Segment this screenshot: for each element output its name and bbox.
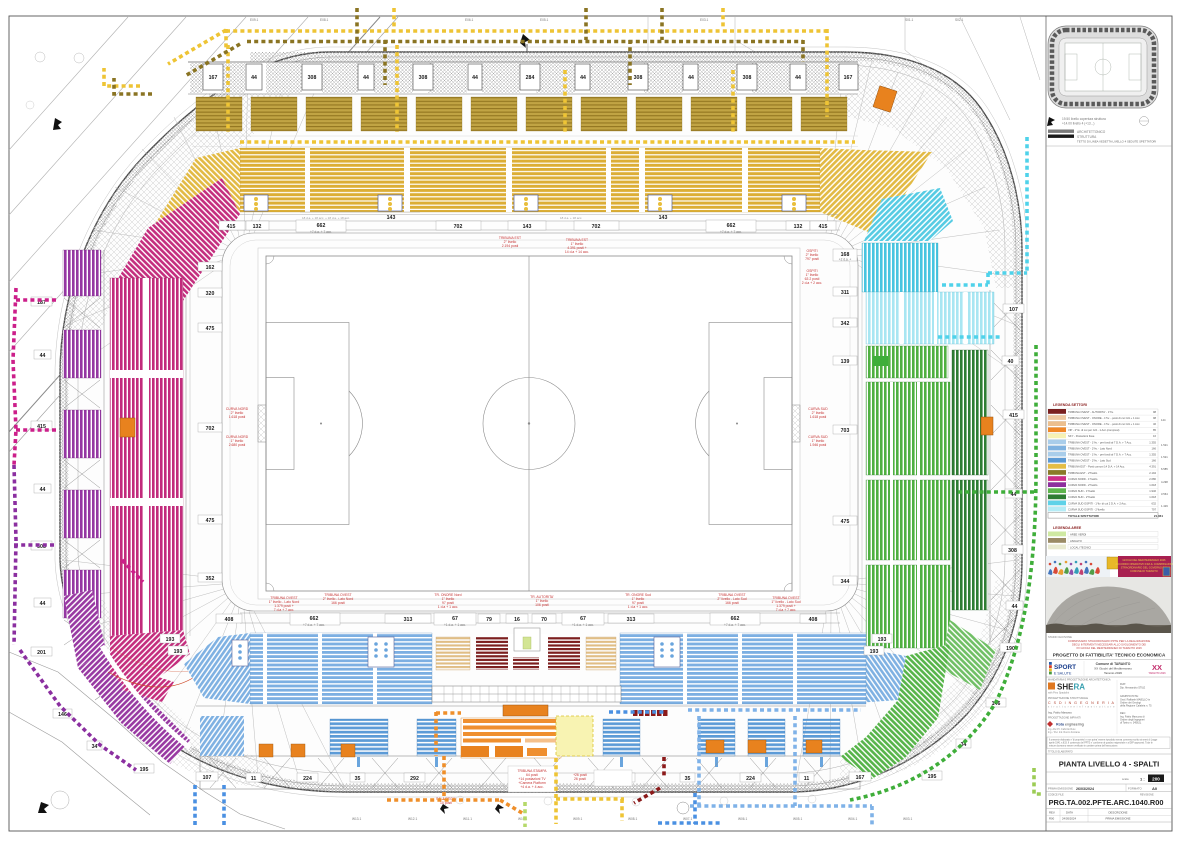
svg-text:LEGENDA AREE: LEGENDA AREE <box>1053 526 1082 530</box>
svg-text:193: 193 <box>878 637 887 643</box>
svg-text:s t r u t t u r e e i n f r: s t r u t t u r e e i n f r a s t r u t … <box>1048 706 1115 709</box>
svg-text:CURVA NORD - 2°livello: CURVA NORD - 2°livello <box>1068 483 1098 487</box>
svg-text:1.521: 1.521 <box>1161 455 1168 459</box>
svg-text:TRIBUNA OVEST - 2°liv. - Lato: TRIBUNA OVEST - 2°liv. - Lato Sud <box>1068 459 1111 463</box>
svg-text:TRIBUNA OVEST - 1°liv. - per f: TRIBUNA OVEST - 1°liv. - per fondi al 7 … <box>1068 440 1132 444</box>
svg-text:313: 313 <box>627 617 636 623</box>
svg-text:+14.00 livello 4 (+13...): +14.00 livello 4 (+13...) <box>1062 122 1094 126</box>
svg-text:Taranto 2026: Taranto 2026 <box>1104 671 1122 675</box>
svg-text:34: 34 <box>92 744 98 750</box>
svg-text:E03.1: E03.1 <box>700 18 709 22</box>
svg-text:misure dovranno essere verific: misure dovranno essere verificate in can… <box>1049 745 1118 748</box>
svg-text:415: 415 <box>227 224 236 230</box>
svg-text:PROGETTAZIONE IMPIANTI: PROGETTAZIONE IMPIANTI <box>1048 717 1081 720</box>
svg-text:702: 702 <box>454 224 463 230</box>
svg-text:40: 40 <box>1008 359 1014 365</box>
svg-text:107: 107 <box>203 775 212 781</box>
svg-text:662: 662 <box>727 223 736 229</box>
svg-text:W06.1: W06.1 <box>738 817 747 821</box>
svg-text:+4 d.a. + 4 acc.: +4 d.a. + 4 acc. <box>520 785 543 789</box>
svg-text:TRIBUNA OVEST - AUTORITA' - 1°: TRIBUNA OVEST - AUTORITA' - 1°liv. <box>1068 410 1114 414</box>
svg-text:E09.1: E09.1 <box>250 18 259 22</box>
svg-text:44: 44 <box>40 601 46 607</box>
svg-text:2.194 posti: 2.194 posti <box>502 244 519 248</box>
svg-text:313: 313 <box>404 617 413 623</box>
svg-text:FORMATO: FORMATO <box>1128 787 1143 791</box>
svg-text:CODICE FILE: CODICE FILE <box>1048 794 1064 797</box>
svg-text:PIANTA LIVELLO 4 - SPALTI: PIANTA LIVELLO 4 - SPALTI <box>1059 760 1160 769</box>
svg-text:1.618 posti: 1.618 posti <box>229 415 246 419</box>
svg-text:with Pino Spadolini: with Pino Spadolini <box>1048 692 1070 695</box>
svg-text:+7 d.a. + 7 acc.: +7 d.a. + 7 acc. <box>720 230 742 234</box>
svg-text:W13.1: W13.1 <box>352 817 361 821</box>
svg-text:E05.1: E05.1 <box>540 18 549 22</box>
svg-text:TARANTO 2026: TARANTO 2026 <box>1148 672 1166 675</box>
svg-text:44: 44 <box>580 75 586 81</box>
svg-text:1 d.a + 1 acc.: 1 d.a + 1 acc. <box>628 605 649 609</box>
svg-text:4.298: 4.298 <box>1161 480 1168 484</box>
svg-text:106 posti: 106 posti <box>535 603 549 607</box>
svg-text:98: 98 <box>1153 410 1156 414</box>
svg-text:44: 44 <box>40 487 46 493</box>
svg-text:44: 44 <box>363 75 369 81</box>
svg-text:W08.1: W08.1 <box>628 817 637 821</box>
svg-text:475: 475 <box>206 518 215 524</box>
svg-text:415: 415 <box>1009 413 1018 419</box>
svg-text:W11.1: W11.1 <box>463 817 472 821</box>
svg-text:190: 190 <box>1006 646 1015 652</box>
svg-text:44: 44 <box>472 75 478 81</box>
svg-text:26/03/2024: 26/03/2024 <box>1076 787 1094 791</box>
svg-text:LOCALI TECNICI: LOCALI TECNICI <box>1070 545 1091 549</box>
svg-text:132: 132 <box>794 224 803 230</box>
svg-text:67: 67 <box>580 616 586 622</box>
svg-text:della Regione Calabria n. 75: della Regione Calabria n. 75 <box>1120 705 1152 708</box>
svg-text:2.680: 2.680 <box>1149 477 1156 481</box>
svg-text:1.355: 1.355 <box>1149 440 1156 444</box>
svg-text:1.618: 1.618 <box>1149 495 1156 499</box>
svg-text:35: 35 <box>355 776 361 782</box>
svg-text:SKY - Postazioni fisse: SKY - Postazioni fisse <box>1068 434 1095 438</box>
svg-text:DATA: DATA <box>1066 811 1073 815</box>
svg-text:44: 44 <box>688 75 694 81</box>
svg-text:16: 16 <box>514 617 520 623</box>
svg-text:1.618 posti: 1.618 posti <box>810 415 827 419</box>
svg-text:320: 320 <box>206 291 215 297</box>
svg-text:W03.1: W03.1 <box>903 817 912 821</box>
svg-text:DESCRIZIONE: DESCRIZIONE <box>1108 811 1127 815</box>
svg-text:662: 662 <box>317 223 326 229</box>
svg-text:aprile 1941 n.633. Il contenut: aprile 1941 n.633. Il contenuto del PFTE… <box>1049 742 1153 745</box>
svg-text:PRG.TA.002.PFTE.ARC.1040.R00: PRG.TA.002.PFTE.ARC.1040.R00 <box>1049 798 1164 807</box>
svg-text:98: 98 <box>1153 416 1156 420</box>
svg-text:TRIBUNA OVEST - 2°liv. - Lato: TRIBUNA OVEST - 2°liv. - Lato Nord <box>1068 446 1112 450</box>
svg-text:STADIO IACOVONE: STADIO IACOVONE <box>1048 635 1072 639</box>
svg-text:195: 195 <box>928 774 937 780</box>
svg-text:TRIBUNA EST - 2°livello: TRIBUNA EST - 2°livello <box>1068 471 1098 475</box>
svg-text:408: 408 <box>809 617 818 623</box>
svg-text:E SALUTE: E SALUTE <box>1054 672 1072 676</box>
svg-text:797 posti: 797 posti <box>805 257 819 261</box>
svg-text:COMUNE DI TARANTO: COMUNE DI TARANTO <box>1130 569 1158 573</box>
svg-text:CURVA SUD OSPITI - 1°liv. di c: CURVA SUD OSPITI - 1°liv. di cui 2 D.A. … <box>1068 501 1127 505</box>
svg-text:2 d.a + 2 acc.: 2 d.a + 2 acc. <box>802 281 823 285</box>
svg-text:44: 44 <box>795 75 801 81</box>
svg-text:Dip. Alessandro STILE: Dip. Alessandro STILE <box>1120 687 1145 690</box>
svg-text:632: 632 <box>1152 501 1157 505</box>
svg-text:E08.1: E08.1 <box>320 18 329 22</box>
svg-text:+1 d.a. + 1 acc.: +1 d.a. + 1 acc. <box>572 623 594 627</box>
svg-text:662: 662 <box>310 616 319 622</box>
svg-text:166 posti: 166 posti <box>725 601 739 605</box>
svg-text:1.946 posti: 1.946 posti <box>810 443 827 447</box>
svg-text:+7 d.a. + 7 acc.: +7 d.a. + 7 acc. <box>724 623 746 627</box>
svg-text:167: 167 <box>844 75 853 81</box>
svg-text:201: 201 <box>37 650 46 656</box>
svg-text:702: 702 <box>592 224 601 230</box>
svg-text:167: 167 <box>856 775 865 781</box>
svg-text:143: 143 <box>659 215 668 221</box>
svg-text:107: 107 <box>1009 307 1018 313</box>
svg-text:139: 139 <box>841 359 850 365</box>
svg-text:143: 143 <box>523 224 532 230</box>
svg-text:SHERA: SHERA <box>1057 683 1085 692</box>
svg-text:167: 167 <box>209 75 218 81</box>
svg-text:MANDATARIA E PROGETTAZIONE ARC: MANDATARIA E PROGETTAZIONE ARCHITETTONIC… <box>1048 679 1111 682</box>
svg-text:166: 166 <box>1152 459 1157 463</box>
svg-text:W09.1: W09.1 <box>573 817 582 821</box>
svg-text:662: 662 <box>731 616 740 622</box>
svg-text:284: 284 <box>526 75 535 81</box>
svg-text:CURVA SUD OSPITI - 2°livello: CURVA SUD OSPITI - 2°livello <box>1068 507 1105 511</box>
svg-text:CURVA SUD - 2°livello: CURVA SUD - 2°livello <box>1068 495 1096 499</box>
svg-text:ARCHITETTONICO: ARCHITETTONICO <box>1077 130 1106 134</box>
svg-text:44: 44 <box>40 353 46 359</box>
svg-text:COMMISSARIO STRAORDINARIO PPTE: COMMISSARIO STRAORDINARIO PPTE PER LA RE… <box>1068 639 1150 643</box>
svg-text:REVISIONE: REVISIONE <box>1140 794 1154 797</box>
svg-text:ASFALTO: ASFALTO <box>1070 539 1082 543</box>
svg-text:2.194: 2.194 <box>1149 471 1156 475</box>
svg-text:344: 344 <box>841 579 850 585</box>
svg-text:TRIBUNA EST - Posti comuni 14: TRIBUNA EST - Posti comuni 14 D.A. + 14 … <box>1068 465 1125 469</box>
svg-text:W07.1: W07.1 <box>683 817 692 821</box>
svg-text:W12.1: W12.1 <box>408 817 417 821</box>
svg-text:342: 342 <box>841 321 850 327</box>
svg-text:Ing. Fabio Marazzo: Ing. Fabio Marazzo <box>1048 711 1072 715</box>
svg-text:TITOLO ELABORATO: TITOLO ELABORATO <box>1048 751 1073 754</box>
svg-text:292: 292 <box>410 776 419 782</box>
svg-text:Ing. / Per. Ind. Rocco Fontana: Ing. / Per. Ind. Rocco Fontana <box>1048 731 1080 734</box>
svg-text:XX: XX <box>1152 663 1162 672</box>
svg-text:46: 46 <box>1153 422 1156 426</box>
svg-text:308: 308 <box>419 75 428 81</box>
svg-text:CURVA NORD - 1°livello: CURVA NORD - 1°livello <box>1068 477 1098 481</box>
svg-text:193: 193 <box>870 649 879 655</box>
svg-text:+7 d.a. + 7 acc.: +7 d.a. + 7 acc. <box>303 623 325 627</box>
svg-text:224: 224 <box>746 776 755 782</box>
svg-text:132: 132 <box>253 224 262 230</box>
svg-text:GIOCHI DEL MEDITERRANEO 2026: GIOCHI DEL MEDITERRANEO 2026 <box>1123 558 1167 562</box>
svg-text:STRUTTURA: STRUTTURA <box>1077 135 1097 139</box>
svg-text:DEGLI INTERVENTI NECESSARI ALL: DEGLI INTERVENTI NECESSARI ALLO SVOLGIME… <box>1072 643 1146 647</box>
svg-text:308: 308 <box>1008 548 1017 554</box>
svg-text:TOTALE SPETTATORI: TOTALE SPETTATORI <box>1068 514 1099 518</box>
svg-text:35: 35 <box>685 776 691 782</box>
svg-text:24/05/2024: 24/05/2024 <box>1062 817 1076 821</box>
svg-text:W05.1: W05.1 <box>793 817 802 821</box>
svg-text:PROGETTO DI FATTIBILITA' TECNI: PROGETTO DI FATTIBILITA' TECNICO ECONOMI… <box>1053 653 1166 658</box>
svg-text:STRAORDINARIO DEL GOVERNO E IL: STRAORDINARIO DEL GOVERNO E IL <box>1121 566 1168 570</box>
svg-text:224: 224 <box>303 776 312 782</box>
svg-text:E06.1: E06.1 <box>465 18 474 22</box>
svg-text:Rota engineering: Rota engineering <box>1056 723 1084 727</box>
svg-text:415: 415 <box>819 224 828 230</box>
svg-text:193: 193 <box>166 637 175 643</box>
svg-text:ACCORDO OPERATIVO FRA IL COMMI: ACCORDO OPERATIVO FRA IL COMMISSARIO <box>1116 562 1173 566</box>
svg-text:+2 d.a. +: +2 d.a. + <box>839 258 852 262</box>
svg-text:W04.1: W04.1 <box>848 817 857 821</box>
svg-text:2.680 posti: 2.680 posti <box>229 443 246 447</box>
svg-text:TRIBUNA OVEST - ONORE - 1°liv.: TRIBUNA OVEST - ONORE - 1°liv. - posti d… <box>1068 422 1141 426</box>
svg-text:166 posti: 166 posti <box>331 601 345 605</box>
svg-text:16: 16 <box>1153 434 1156 438</box>
svg-text:14 d.a + 14 acc.: 14 d.a + 14 acc. <box>565 250 589 254</box>
svg-text:Il presente elaborato e' di pr: Il presente elaborato e' di proprieta' e… <box>1049 739 1158 742</box>
svg-text:Comune di TARANTO: Comune di TARANTO <box>1096 662 1131 666</box>
svg-text:TRIBUNA OVEST - ONORE - 1°liv.: TRIBUNA OVEST - ONORE - 1°liv. - posti d… <box>1068 416 1141 420</box>
svg-text:PRIMA EMISSIONE: PRIMA EMISSIONE <box>1048 787 1073 791</box>
svg-text:144: 144 <box>1161 418 1166 422</box>
svg-text:1 :: 1 : <box>1140 777 1145 782</box>
svg-text:475: 475 <box>841 519 850 525</box>
svg-text:18 d.a. + 18 acc. + 18 d.a. +: 18 d.a. + 18 acc. + 18 d.a. + 18 acc. <box>302 216 350 220</box>
svg-text:195: 195 <box>140 767 149 773</box>
svg-text:21.061: 21.061 <box>1154 514 1164 518</box>
svg-text:408: 408 <box>225 617 234 623</box>
svg-text:18 d.a. + 18 acc.: 18 d.a. + 18 acc. <box>560 216 582 220</box>
svg-text:di Torino n. 34562L: di Torino n. 34562L <box>1120 722 1142 725</box>
svg-text:797: 797 <box>1152 507 1157 511</box>
svg-text:1.946: 1.946 <box>1149 489 1156 493</box>
svg-text:44: 44 <box>251 75 257 81</box>
svg-text:scala: scala <box>1122 777 1129 781</box>
svg-text:1.429: 1.429 <box>1161 504 1168 508</box>
svg-text:TETTO DI LINEA VEDETTA LIVELLO: TETTO DI LINEA VEDETTA LIVELLO 4 SEDUTE … <box>1077 140 1156 144</box>
svg-text:44: 44 <box>1012 604 1018 610</box>
svg-text:79: 79 <box>486 617 492 623</box>
svg-text:A0: A0 <box>1152 786 1158 791</box>
svg-text:C S D I N G E G N E R I A: C S D I N G E G N E R I A <box>1048 701 1115 705</box>
svg-text:162: 162 <box>206 265 215 271</box>
svg-text:AREE VERDI: AREE VERDI <box>1070 532 1087 536</box>
svg-text:+7 d.a. + 7 acc.: +7 d.a. + 7 acc. <box>310 230 332 234</box>
svg-text:193: 193 <box>174 649 183 655</box>
svg-text:308: 308 <box>743 75 752 81</box>
svg-text:85: 85 <box>1153 428 1156 432</box>
svg-text:1.521: 1.521 <box>1161 443 1168 447</box>
svg-text:11: 11 <box>251 776 257 782</box>
svg-text:70: 70 <box>541 617 547 623</box>
svg-text:TRIBUNA OVEST - 1°liv. - per f: TRIBUNA OVEST - 1°liv. - per fondi al 7 … <box>1068 453 1132 457</box>
svg-text:LEGENDA SETTORI: LEGENDA SETTORI <box>1053 403 1087 407</box>
svg-text:26 posti: 26 posti <box>574 777 586 781</box>
svg-text:146: 146 <box>58 712 67 718</box>
svg-text:703: 703 <box>841 428 850 434</box>
svg-text:475: 475 <box>206 326 215 332</box>
svg-text:4.391: 4.391 <box>1149 465 1156 469</box>
svg-text:200: 200 <box>1152 776 1160 781</box>
svg-text:311: 311 <box>841 290 849 296</box>
svg-text:702: 702 <box>206 426 215 432</box>
svg-text:7 d.a + 7 acc.: 7 d.a + 7 acc. <box>776 608 797 612</box>
svg-text:3.564: 3.564 <box>1161 492 1168 496</box>
svg-text:143: 143 <box>387 215 396 221</box>
svg-text:6.585: 6.585 <box>1161 467 1168 471</box>
svg-text:308: 308 <box>634 75 643 81</box>
svg-text:XX Giochi del Mediterraneo: XX Giochi del Mediterraneo <box>1094 667 1132 671</box>
svg-text:CURVA SUD - 1°livello: CURVA SUD - 1°livello <box>1068 489 1096 493</box>
svg-text:308: 308 <box>308 75 317 81</box>
svg-text:PRIMA EMISSIONE: PRIMA EMISSIONE <box>1105 817 1130 821</box>
svg-text:19.50 livello copertura strut: 19.50 livello copertura struttura <box>1062 117 1106 121</box>
svg-text:SPORT: SPORT <box>1054 664 1076 671</box>
svg-text:PROGETTAZIONE STRUTTURALE: PROGETTAZIONE STRUTTURALE <box>1048 697 1088 700</box>
svg-text:REV.: REV. <box>1049 811 1055 815</box>
svg-text:XX GIOCHI DEL MEDITERRANEO DI: XX GIOCHI DEL MEDITERRANEO DI TARANTO 20… <box>1076 646 1142 650</box>
svg-text:7 d.a + 7 acc.: 7 d.a + 7 acc. <box>274 608 295 612</box>
svg-text:67: 67 <box>452 616 458 622</box>
svg-text:166: 166 <box>1152 446 1157 450</box>
svg-text:1.355: 1.355 <box>1149 453 1156 457</box>
svg-text:VIP - 2°liv. di cui per C/A -: VIP - 2°liv. di cui per C/A - 1 Acc.(com… <box>1068 428 1120 432</box>
svg-text:+1 d.a. + 1 acc.: +1 d.a. + 1 acc. <box>444 623 466 627</box>
svg-text:352: 352 <box>206 576 215 582</box>
svg-text:1 d.a + 1 acc.: 1 d.a + 1 acc. <box>438 605 459 609</box>
svg-text:S02.1: S02.1 <box>955 18 964 22</box>
svg-text:R00: R00 <box>1049 817 1055 821</box>
svg-text:11: 11 <box>804 776 810 782</box>
svg-text:1.618: 1.618 <box>1149 483 1156 487</box>
svg-text:S01.1: S01.1 <box>905 18 914 22</box>
